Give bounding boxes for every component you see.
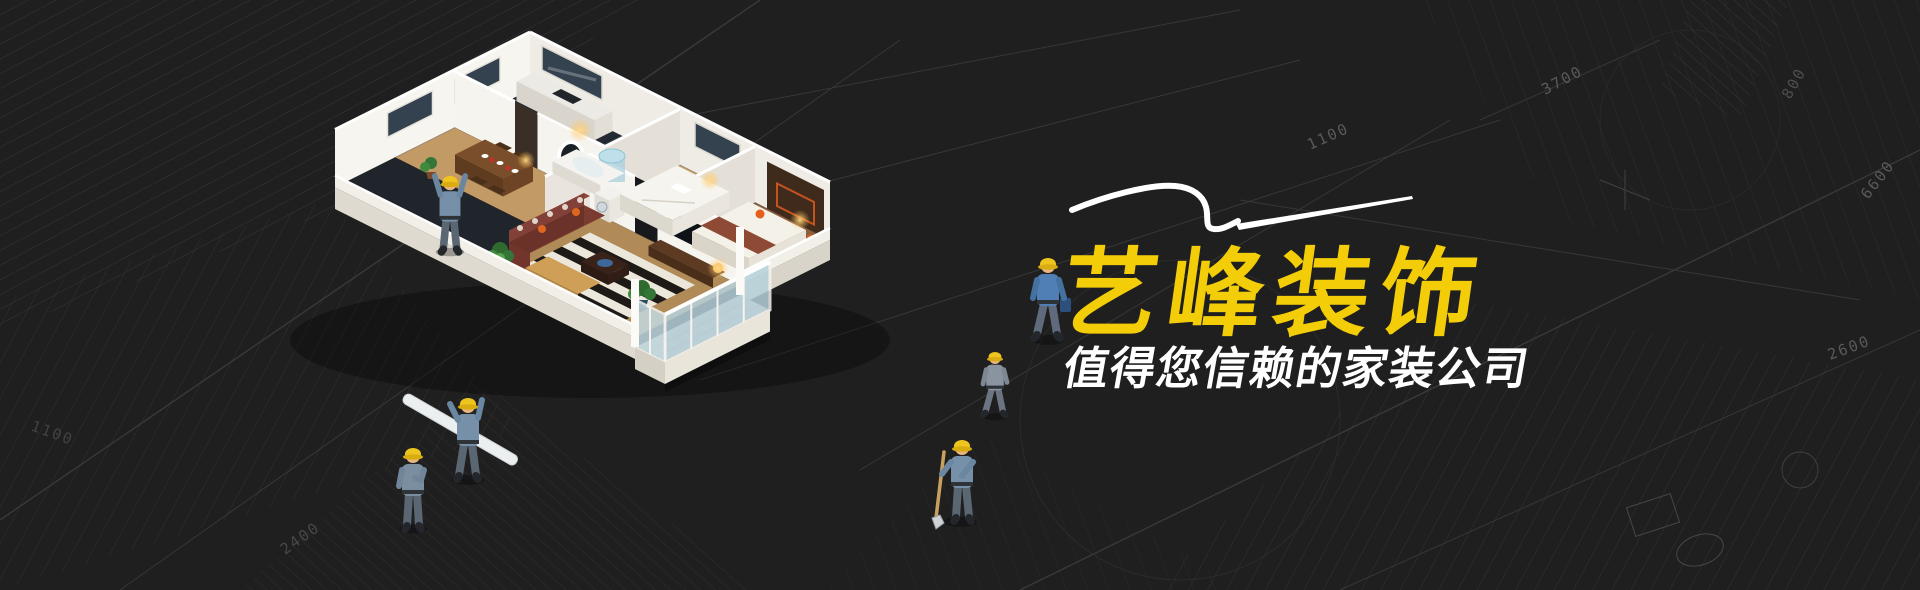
company-name: 艺峰装饰	[1055, 246, 1492, 342]
swoosh-stroke-icon	[1072, 186, 1413, 230]
worker-walking-gray-icon	[983, 352, 1007, 420]
dimension-label: 1100	[1304, 119, 1352, 153]
dimension-label: 2600	[1825, 332, 1873, 364]
balcony-column	[736, 227, 744, 295]
banner: 3700 1100 6600 2600 2400 800 1100	[0, 0, 1920, 590]
orange-pillow	[538, 225, 546, 233]
banner-scene: 3700 1100 6600 2600 2400 800 1100	[0, 0, 1920, 590]
balcony-column	[631, 279, 639, 347]
orange-pillow	[572, 208, 580, 216]
shower-cabin	[599, 149, 625, 163]
orange-lamp	[756, 210, 765, 219]
tagline: 值得您信赖的家装公司	[1060, 346, 1533, 391]
